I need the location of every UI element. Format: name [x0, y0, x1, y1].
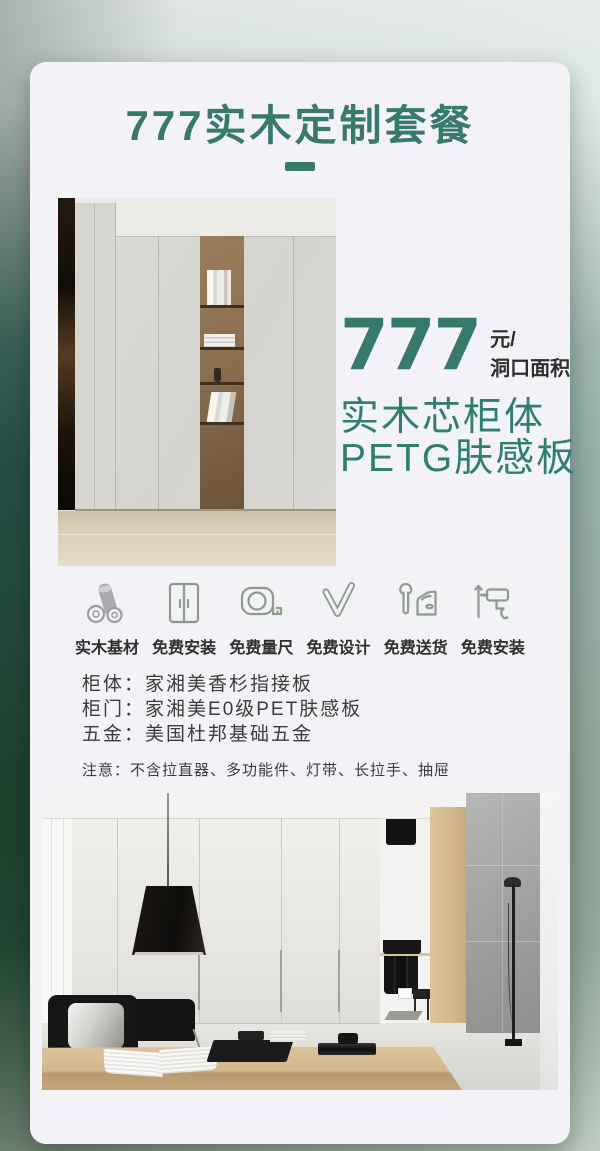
- open-book: [103, 1049, 162, 1077]
- door-handle: [198, 948, 200, 1010]
- black-portfolio: [206, 1040, 293, 1062]
- black-tray: [318, 1043, 376, 1055]
- pendant-cord: [167, 793, 169, 887]
- white-storage-box: [398, 988, 412, 999]
- poster-background: 777实木定制套餐 777: [0, 0, 600, 1151]
- dark-side-cabinet: [58, 198, 75, 510]
- page-title: 777实木定制套餐: [30, 92, 570, 153]
- wardrobe-door-gap: [117, 818, 118, 1024]
- spec-value: 家湘美香杉指接板: [145, 674, 313, 695]
- concrete-tile-line: [502, 793, 503, 1033]
- drill-icon: [456, 578, 530, 626]
- doormat: [384, 1011, 422, 1020]
- service-label: 免费设计: [302, 634, 376, 658]
- price-unit-line2: 洞口面积: [490, 355, 570, 384]
- tan-wood-panel: [430, 807, 466, 1023]
- spec-value: 美国杜邦基础五金: [145, 724, 313, 745]
- spec-list: 柜体：家湘美香杉指接板 柜门：家湘美E0级PET肤感板 五金：美国杜邦基础五金: [82, 672, 362, 747]
- feature-line-2: PETG肤感板: [340, 439, 580, 480]
- door-gap: [293, 236, 294, 510]
- concrete-tile-line: [466, 865, 540, 866]
- camera-object: [338, 1033, 358, 1044]
- large-wardrobe: [72, 818, 380, 1024]
- service-free-delivery: 免费送货: [379, 578, 453, 658]
- spec-label: 五金：: [82, 724, 145, 745]
- price-features: 实木芯柜体 PETG肤感板: [340, 398, 580, 479]
- small-vase: [214, 368, 221, 382]
- spec-label: 柜体：: [82, 674, 145, 695]
- wood-floor: [58, 511, 336, 566]
- side-table-legs: [427, 999, 429, 1020]
- spec-row-cabinet: 柜体：家湘美香杉指接板: [82, 672, 362, 697]
- promo-card: 777实木定制套餐 777: [30, 62, 570, 1144]
- door-handle: [280, 950, 282, 1012]
- price-amount: 777: [340, 312, 480, 379]
- shelf-board: [200, 305, 244, 308]
- service-label: 免费送货: [379, 634, 453, 658]
- delivery-car-icon: [379, 578, 453, 626]
- spec-label: 柜门：: [82, 699, 145, 720]
- window-mullion: [51, 819, 52, 1023]
- door-handle: [338, 950, 340, 1012]
- tape-measure-icon: [224, 578, 298, 626]
- left-side-wall: [75, 203, 116, 510]
- concrete-wall: [466, 793, 540, 1033]
- shelf-board: [200, 382, 244, 385]
- hanging-clothes: [383, 940, 421, 954]
- spec-row-door: 柜门：家湘美E0级PET肤感板: [82, 697, 362, 722]
- services-row: 实木基材 免费安装: [70, 578, 530, 658]
- service-label: 免费量尺: [224, 634, 298, 658]
- bright-window-strip: [540, 793, 558, 1090]
- black-side-table: [413, 989, 430, 999]
- service-wood-material: 实木基材: [70, 578, 144, 658]
- wood-logs-icon: [70, 578, 144, 626]
- shelf-board: [200, 422, 244, 425]
- price-unit-line1: 元/: [490, 326, 570, 355]
- concrete-tile-line: [466, 941, 540, 942]
- pendant-shade-glow: [134, 952, 204, 955]
- wardrobe-closet-photo: [58, 198, 336, 566]
- hanging-clothes-upper: [386, 819, 416, 845]
- price-amount-row: 777 元/ 洞口面积: [340, 312, 580, 384]
- spec-value: 家湘美E0级PET肤感板: [145, 699, 362, 720]
- price-block: 777 元/ 洞口面积 实木芯柜体 PETG肤感板: [340, 312, 580, 479]
- room-scene-photo: [42, 793, 558, 1090]
- service-free-measure: 免费量尺: [224, 578, 298, 658]
- service-free-design: 免费设计: [302, 578, 376, 658]
- books-leaning: [207, 392, 237, 422]
- service-label: 免费安装: [456, 634, 530, 658]
- price-unit: 元/ 洞口面积: [490, 326, 570, 384]
- spec-row-hardware: 五金：美国杜邦基础五金: [82, 722, 362, 747]
- floor-lamp-base: [505, 1039, 522, 1046]
- window-wall-left: [42, 819, 72, 1023]
- service-free-install-wardrobe: 免费安装: [147, 578, 221, 658]
- shelf-board: [200, 347, 244, 350]
- desk-object-small: [238, 1031, 264, 1040]
- books-upright: [207, 270, 231, 305]
- tv-screen: [68, 1003, 124, 1049]
- floor-plank-line: [58, 534, 336, 535]
- feature-line-1: 实木芯柜体: [340, 398, 580, 439]
- white-papers: [270, 1031, 306, 1042]
- title-divider: [285, 162, 315, 171]
- design-pencil-icon: [302, 578, 376, 626]
- floor-lamp-cable: [508, 903, 517, 1023]
- window-mullion: [63, 819, 64, 1023]
- service-label: 免费安装: [147, 634, 221, 658]
- exclusion-note: 注意：不含拉直器、多功能件、灯带、长拉手、抽屉: [82, 759, 450, 780]
- books-stacked: [204, 334, 235, 347]
- left-wall-gap: [94, 203, 95, 510]
- door-gap: [158, 236, 159, 510]
- service-label: 实木基材: [70, 634, 144, 658]
- service-free-install-drill: 免费安装: [456, 578, 530, 658]
- wardrobe-icon: [147, 578, 221, 626]
